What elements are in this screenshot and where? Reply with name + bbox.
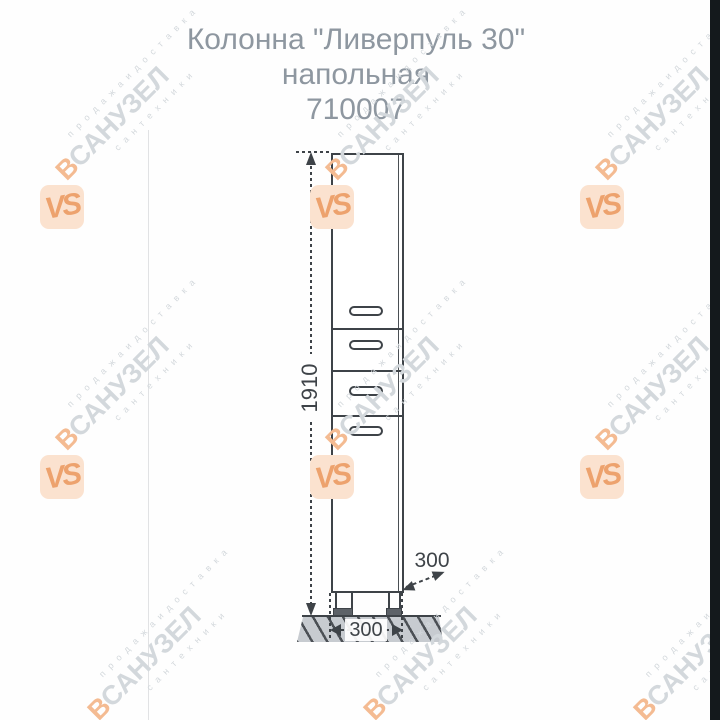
watermark-tile: VS п р о д а ж а и д о с т а в к а ВСАНУ… xyxy=(580,185,720,415)
width-dim-arrow-left xyxy=(330,624,341,636)
floor-line xyxy=(302,615,441,617)
drawer-1-handle xyxy=(349,340,383,350)
watermark-brand-first-letter: В xyxy=(628,692,662,720)
watermark-brand-first-letter: В xyxy=(590,422,624,456)
watermark-brand-first-letter: В xyxy=(82,692,116,720)
watermark-brand: ВСАНУЗЕЛ xyxy=(590,244,720,456)
vsanuzel-logo-icon: VS xyxy=(580,455,624,499)
watermark-tagline-top: п р о д а ж а и д о с т а в к а xyxy=(64,234,240,410)
watermark-tile: VS п р о д а ж а и д о с т а в к а ВСАНУ… xyxy=(40,455,270,685)
watermark-text: п р о д а ж а и д о с т а в к а ВСАНУЗЕЛ… xyxy=(618,504,720,720)
watermark-tagline-bottom: с а н т е х н и к и xyxy=(382,265,541,424)
product-drawing-page: Колонна "Ливерпуль 30" напольная 710007 xyxy=(0,0,720,720)
product-type: напольная xyxy=(0,57,712,92)
drawer-divider-line-2 xyxy=(331,415,404,417)
cabinet-side-edge-line xyxy=(398,155,399,591)
product-article: 710007 xyxy=(0,92,712,127)
watermark-brand-rest: САНУЗЕЛ xyxy=(641,601,720,713)
cabinet-outline xyxy=(331,153,404,593)
watermark-brand-first-letter: В xyxy=(50,152,84,186)
scan-artifact-line xyxy=(148,130,149,720)
watermark-tagline-bottom: с а н т е х н и к и xyxy=(112,265,271,424)
watermark-brand-first-letter: В xyxy=(590,152,624,186)
vsanuzel-logo-icon: VS xyxy=(40,185,84,229)
watermark-brand: ВСАНУЗЕЛ xyxy=(82,514,294,720)
width-dim-dash-right xyxy=(386,629,394,631)
lower-door-handle xyxy=(349,426,383,436)
watermark-tagline-top: п р о д а ж а и д о с т а в к а xyxy=(604,234,720,410)
width-dim-label: 300 xyxy=(345,619,387,641)
upper-door-bottom-line xyxy=(331,328,404,330)
watermark-brand-rest: САНУЗЕЛ xyxy=(603,331,715,443)
watermark-text: п р о д а ж а и д о с т а в к а ВСАНУЗЕЛ… xyxy=(580,234,720,465)
watermark-tile: VS п р о д а ж а и д о с т а в к а ВСАНУ… xyxy=(40,185,270,415)
drawer-divider-line-1 xyxy=(331,370,404,372)
watermark-brand-rest: САНУЗЕЛ xyxy=(63,331,175,443)
height-dim-arrow-up xyxy=(306,152,316,165)
watermark-brand-first-letter: В xyxy=(50,422,84,456)
dark-edge-strip xyxy=(710,0,720,720)
drawer-2-handle xyxy=(349,386,383,396)
page-title: Колонна "Ливерпуль 30" напольная 710007 xyxy=(0,22,712,127)
product-name: Колонна "Ливерпуль 30" xyxy=(0,22,712,57)
watermark-brand: ВСАНУЗЕЛ xyxy=(50,244,262,456)
height-dim-line-lower xyxy=(310,422,312,608)
watermark-tagline-top: п р о д а ж а и д о с т а в к а xyxy=(96,504,272,680)
height-dim-line-upper xyxy=(310,160,312,354)
upper-door-handle xyxy=(349,306,383,316)
depth-dim-label: 300 xyxy=(410,549,454,573)
height-dim-arrow-down xyxy=(306,603,316,616)
watermark-tagline-top: п р о д а ж а и д о с т а в к а xyxy=(642,504,720,680)
height-dim-label: 1910 xyxy=(299,346,321,430)
vsanuzel-logo-icon: VS xyxy=(580,185,624,229)
watermark-text: п р о д а ж а и д о с т а в к а ВСАНУЗЕЛ… xyxy=(40,234,271,465)
watermark-text: п р о д а ж а и д о с т а в к а ВСАНУЗЕЛ… xyxy=(72,504,303,720)
watermark-brand-first-letter: В xyxy=(358,692,392,720)
watermark-tile: VS п р о д а ж а и д о с т а в к а ВСАНУ… xyxy=(580,455,720,685)
watermark-tagline-bottom: с а н т е х н и к и xyxy=(144,535,303,694)
vsanuzel-logo-icon: VS xyxy=(40,455,84,499)
watermark-brand-rest: САНУЗЕЛ xyxy=(95,601,207,713)
watermark-brand: ВСАНУЗЕЛ xyxy=(628,514,720,720)
